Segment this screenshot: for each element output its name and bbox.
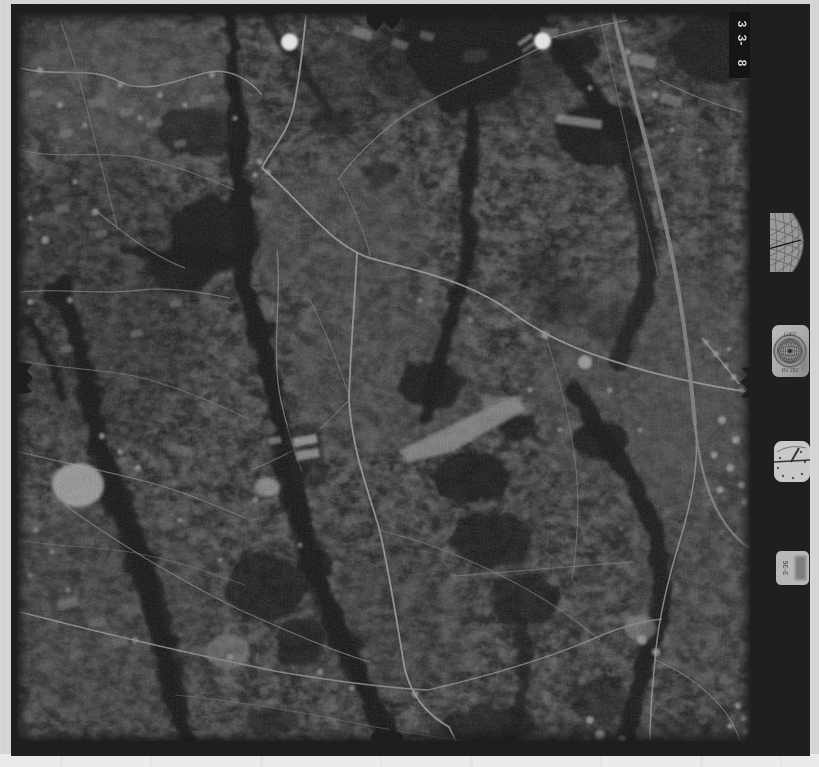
- svg-text:LUFT: LUFT: [784, 332, 797, 338]
- svg-text:8: 8: [735, 60, 749, 67]
- svg-text:RV 250: RV 250: [782, 368, 799, 374]
- svg-text:3: 3: [735, 21, 749, 28]
- svg-text:3-: 3-: [735, 35, 749, 46]
- svg-text:9Ɛ-Ɛ: 9Ɛ-Ɛ: [781, 561, 788, 576]
